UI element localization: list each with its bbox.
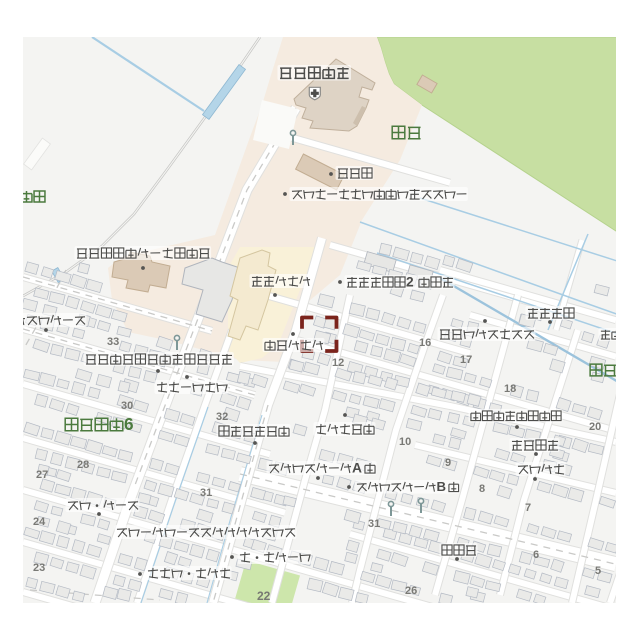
svg-text:26: 26 <box>405 585 417 597</box>
svg-text:9: 9 <box>445 457 451 469</box>
svg-text:5: 5 <box>595 565 601 577</box>
svg-text:22: 22 <box>257 589 271 603</box>
svg-text:8: 8 <box>479 483 485 495</box>
svg-text:23: 23 <box>33 562 45 574</box>
svg-text:33: 33 <box>107 336 119 348</box>
svg-text:7: 7 <box>525 502 531 514</box>
svg-text:32: 32 <box>216 411 228 423</box>
svg-text:A: A <box>352 460 362 475</box>
svg-text:27: 27 <box>36 469 48 481</box>
svg-text:20: 20 <box>589 421 601 433</box>
svg-text:12: 12 <box>332 357 344 369</box>
svg-text:B: B <box>437 479 447 494</box>
svg-text:28: 28 <box>77 459 89 471</box>
svg-text:31: 31 <box>368 518 380 530</box>
svg-text:16: 16 <box>419 337 431 349</box>
svg-text:6: 6 <box>124 414 134 434</box>
svg-text:17: 17 <box>460 354 472 366</box>
svg-text:31: 31 <box>200 487 212 499</box>
svg-text:24: 24 <box>33 516 46 528</box>
svg-text:6: 6 <box>533 549 539 561</box>
svg-text:10: 10 <box>399 436 411 448</box>
svg-text:18: 18 <box>504 383 516 395</box>
svg-text:2: 2 <box>406 274 414 289</box>
svg-text:30: 30 <box>121 400 133 412</box>
